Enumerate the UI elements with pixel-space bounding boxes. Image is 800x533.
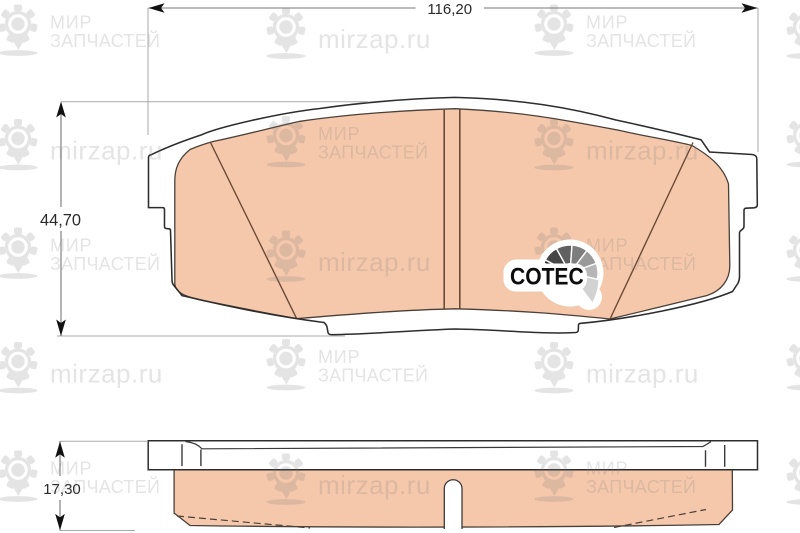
svg-text:COTEC: COTEC xyxy=(510,262,584,290)
svg-text:44,70: 44,70 xyxy=(40,212,81,230)
svg-text:116,20: 116,20 xyxy=(427,1,472,18)
